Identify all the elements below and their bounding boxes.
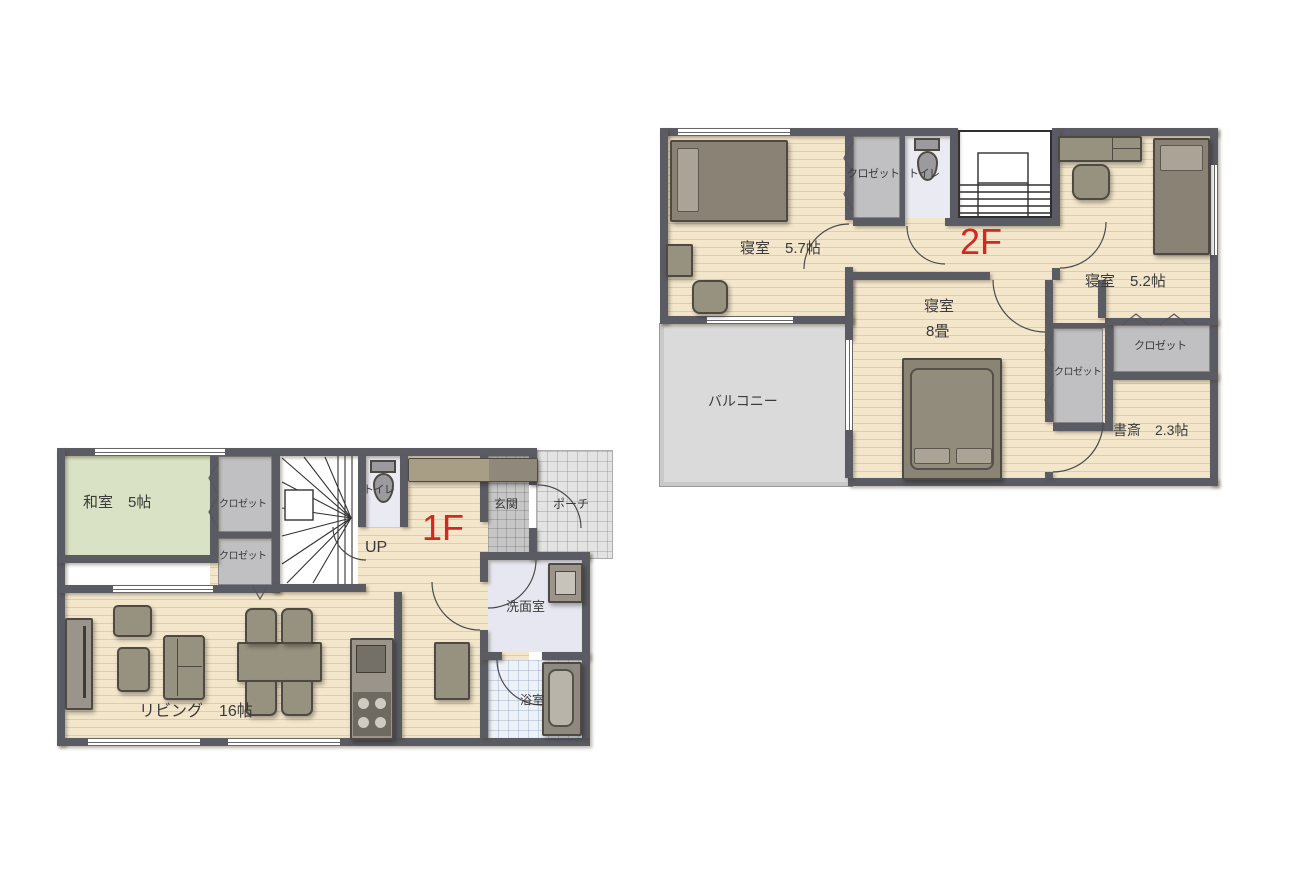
label-porch: ポーチ	[553, 497, 589, 511]
label-closet-1f-top: クロゼット	[219, 499, 267, 511]
floor-label-1f: 1F	[422, 510, 464, 546]
floor-plan-1f: 和室 5帖 クロゼット クロゼット トイレ UP 1F 玄関 ポーチ 洗面室 浴…	[57, 448, 613, 748]
label-entrance: 玄関	[494, 497, 518, 511]
label-balcony: バルコニー	[708, 393, 778, 410]
label-bathroom: 浴室	[520, 693, 544, 707]
label-study: 書斎 2.3帖	[1113, 422, 1188, 439]
label-closet-1f-bottom: クロゼット	[219, 551, 267, 563]
label-living: リビング 16帖	[139, 702, 253, 721]
floor-plan-2f: 寝室 5.7帖 クロゼット トイレ 2F 寝室 5.2帖 寝室 8畳 バルコニー…	[660, 128, 1218, 486]
label-closet-2f-right: クロゼット	[1134, 340, 1187, 353]
door-arcs	[804, 222, 1106, 472]
label-up: UP	[365, 538, 387, 557]
label-bedroom-8-size: 8畳	[926, 323, 949, 341]
winder-stair-lines	[282, 456, 352, 584]
label-bedroom-5-7: 寝室 5.7帖	[740, 240, 821, 258]
stair-lines	[960, 153, 1050, 216]
label-closet-2f-mid: クロゼット	[1054, 367, 1102, 379]
label-washitsu: 和室 5帖	[83, 494, 151, 512]
label-toilet-1f: トイレ	[363, 484, 395, 497]
label-toilet-2f: トイレ	[908, 168, 940, 181]
label-bedroom-8-name: 寝室	[924, 298, 954, 316]
bifold-door-marks	[209, 462, 268, 599]
floor-label-2f: 2F	[960, 224, 1002, 260]
floor-plan-canvas: 寝室 5.7帖 クロゼット トイレ 2F 寝室 5.2帖 寝室 8畳 バルコニー…	[0, 0, 1297, 879]
label-bedroom-5-2: 寝室 5.2帖	[1085, 273, 1166, 291]
label-closet-2f-top: クロゼット	[847, 168, 900, 181]
label-washroom: 洗面室	[506, 599, 545, 615]
